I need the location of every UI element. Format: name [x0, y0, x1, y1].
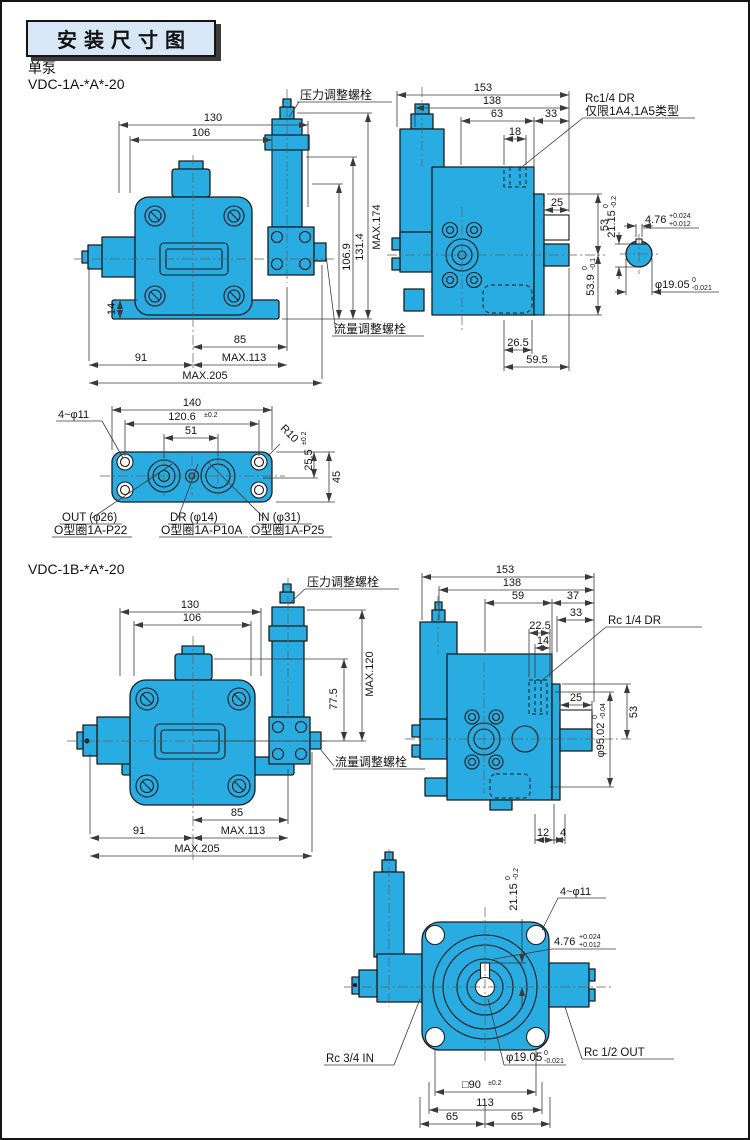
- dim-25: 25: [551, 197, 563, 209]
- dim-21-15: 21.15 0 -0.2: [603, 196, 618, 238]
- dim-153: 153: [474, 82, 492, 94]
- dim-21-15: 21.15 0 -0.2: [505, 868, 520, 911]
- dim-sq90: □90: [462, 1079, 481, 1091]
- dim-14: 14: [537, 635, 549, 647]
- svg-text:21.15: 21.15: [606, 210, 618, 238]
- dim-19-05: φ19.05: [655, 279, 690, 291]
- svg-text:+0.012: +0.012: [669, 221, 691, 228]
- dim-4-76: 4.76: [554, 936, 575, 948]
- svg-text:+0.024: +0.024: [669, 213, 691, 220]
- port-in-label: Rc 3/4 IN: [326, 1053, 374, 1065]
- svg-text:0: 0: [582, 266, 589, 270]
- dim-max174: MAX.174: [371, 204, 383, 249]
- page-title: 安装尺寸图: [50, 24, 192, 53]
- dim-max205: MAX.205: [174, 843, 219, 855]
- svg-text:25.5: 25.5: [303, 449, 315, 470]
- view-1b-front: 130 106 MAX.120 77.5 85 91 MAX.113 MAX.2…: [27, 574, 399, 866]
- dim-14: 14: [106, 303, 118, 315]
- dim-138: 138: [503, 577, 521, 589]
- dim-59-5: 59.5: [526, 354, 547, 366]
- dim-91: 91: [135, 352, 147, 364]
- dim-18: 18: [509, 126, 521, 138]
- pump-body-1b-side: [412, 602, 592, 810]
- svg-text:+0.012: +0.012: [579, 942, 601, 949]
- svg-text:-0.2: -0.2: [513, 868, 520, 880]
- svg-text:-0.021: -0.021: [544, 1058, 564, 1065]
- pressure-bolt-label-1a: 压力调整螺栓: [300, 87, 372, 102]
- dim-53: 53: [628, 706, 640, 718]
- dim-37: 37: [567, 590, 579, 602]
- dim-131-4: 131.4: [354, 233, 366, 261]
- dim-106: 106: [183, 612, 201, 624]
- dim-26-5: 26.5: [507, 337, 528, 349]
- dim-19-05: φ19.05: [506, 1052, 542, 1064]
- port-note-1b-side: Rc 1/4 DR: [540, 615, 702, 682]
- dim-4: 4: [560, 827, 566, 839]
- svg-text:-0.1: -0.1: [590, 258, 597, 270]
- dim-51: 51: [185, 425, 197, 437]
- pump-body-1a-side: [392, 104, 569, 315]
- dim-65-left: 65: [446, 1111, 458, 1123]
- dim-63: 63: [491, 108, 503, 120]
- dim-max205: MAX.205: [182, 370, 227, 382]
- dim-59: 59: [512, 590, 524, 602]
- dim-77-5: 77.5: [328, 688, 340, 709]
- dim-53-9: 53.9 0 -0.1: [582, 258, 597, 296]
- drawing-page: 安装尺寸图 单泵 VDC-1A-*A*-20 VDC-1B-*A*-20: [0, 0, 750, 1140]
- view-1b-side: 153 138 59 37 33 22.5 14 25 53: [390, 562, 750, 862]
- dim-106-9: 106.9: [341, 243, 353, 271]
- port-dr-line2: O型圈1A-P10A: [161, 523, 242, 537]
- svg-text:-0.021: -0.021: [692, 285, 712, 292]
- svg-text:21.15: 21.15: [508, 883, 520, 911]
- svg-text:0: 0: [505, 876, 512, 880]
- dim-138: 138: [483, 95, 501, 107]
- port-note-line2: 仅限1A4,1A5类型: [585, 104, 679, 118]
- port-note: Rc 1/4 DR: [608, 615, 661, 627]
- dim-33: 33: [570, 607, 582, 619]
- dim-33: 33: [545, 108, 557, 120]
- dim-4-76: 4.76: [645, 214, 666, 226]
- view-1b-rear: 21.15 0 -0.2 4~φ11 4.76 +0.024 +0.012 □9…: [314, 847, 750, 1135]
- port-in-line2: O型圈1A-P25: [251, 523, 325, 537]
- dim-max113: MAX.113: [222, 352, 266, 364]
- pump-body-1b-rear: [352, 852, 595, 1050]
- dim-12: 12: [537, 827, 549, 839]
- dim-max113: MAX.113: [221, 825, 265, 837]
- corner-radius: R10: [278, 422, 301, 445]
- dim-120-6: 120.6: [168, 411, 196, 423]
- svg-text:φ95.02: φ95.02: [595, 723, 607, 758]
- svg-text:±0.2: ±0.2: [301, 431, 308, 445]
- svg-text:+0.024: +0.024: [579, 934, 601, 941]
- svg-text:0: 0: [544, 1050, 548, 1057]
- dim-max120: MAX.120: [364, 651, 376, 696]
- tol-120-6: ±0.2: [204, 412, 218, 419]
- dim-85: 85: [234, 334, 246, 346]
- dim-91: 91: [133, 825, 145, 837]
- svg-text:-0.2: -0.2: [611, 196, 618, 208]
- dim-95-02: φ95.02 0 -0.04: [592, 703, 607, 757]
- view-1a-side: 153 138 63 33 18 25 53 53.9 0 -0.1: [387, 82, 749, 392]
- dim-85: 85: [231, 807, 243, 819]
- svg-text:0: 0: [603, 204, 610, 208]
- mounting-plate-1a: [100, 452, 285, 502]
- dim-65-right: 65: [511, 1111, 523, 1123]
- dim-25: 25: [570, 692, 582, 704]
- svg-text:0: 0: [692, 277, 696, 284]
- svg-text:-0.04: -0.04: [600, 703, 607, 719]
- view-1a-front: 130 106 MAX.174 153 131.4 106.9 14 85 91: [72, 87, 402, 392]
- port-out-line2: O型圈1A-P22: [54, 523, 128, 537]
- svg-text:0: 0: [592, 715, 599, 719]
- dim-130: 130: [204, 112, 222, 124]
- dim-22-5: 22.5: [529, 620, 550, 632]
- page-title-box: 安装尺寸图: [26, 20, 216, 57]
- dim-140: 140: [183, 397, 201, 409]
- pump-type-label: 单泵: [28, 58, 56, 78]
- port-note-1a: Rc1/4 DR 仅限1A4,1A5类型: [518, 93, 695, 170]
- shaft-detail-1a: 21.15 0 -0.2 4.76 +0.024 +0.012 φ19.05 0…: [603, 196, 719, 295]
- dim-130: 130: [181, 599, 199, 611]
- holes-note-1a: 4~φ11: [58, 409, 89, 421]
- dim-153: 153: [496, 564, 514, 576]
- tol-sq90: ±0.2: [488, 1080, 502, 1087]
- svg-text:53.9: 53.9: [585, 274, 597, 295]
- holes-note-1b: 4~φ11: [560, 886, 591, 898]
- dim-45: 45: [331, 471, 343, 483]
- dim-25-5: 25.5 ±0.2: [301, 431, 315, 470]
- pressure-bolt-label-1b: 压力调整螺栓: [307, 574, 379, 589]
- view-1a-bottom: 140 120.6 ±0.2 51 4~φ11 R10 25.5 ±0.2 45: [30, 394, 380, 546]
- dim-106: 106: [192, 127, 210, 139]
- port-out-label: Rc 1/2 OUT: [584, 1047, 645, 1059]
